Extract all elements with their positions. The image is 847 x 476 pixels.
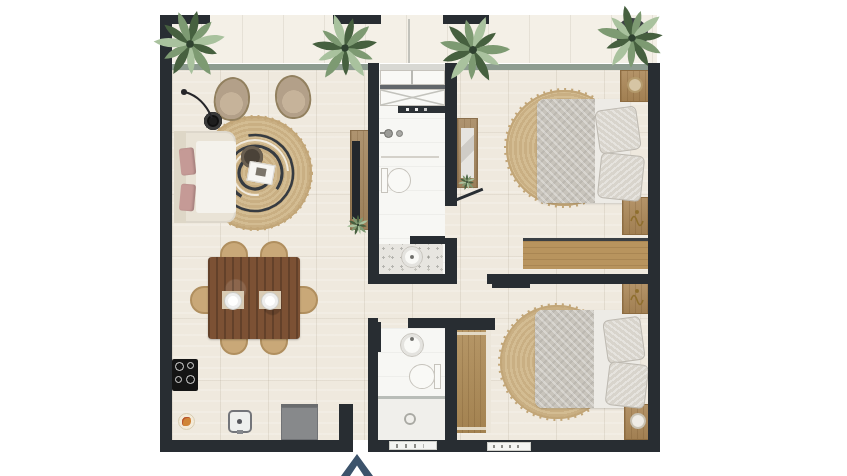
wall-right (648, 63, 660, 452)
plant-pot (616, 18, 648, 50)
plate (261, 292, 279, 310)
toilet-bowl (387, 168, 411, 193)
shower-tray (380, 89, 445, 106)
bathroom-top-wall-right (445, 63, 457, 206)
sofa-pillow (179, 183, 196, 211)
toiletry-item (415, 108, 418, 111)
shower-drain (404, 413, 416, 425)
plate (224, 292, 242, 310)
duvet (535, 310, 594, 408)
entrance-arrow-icon (341, 454, 373, 476)
closet-wardrobe (456, 330, 486, 433)
cooktop-burner (186, 375, 195, 384)
shower-glass (378, 396, 445, 399)
door-leaf-bathroom-bottom (377, 322, 381, 352)
sink-drain (410, 255, 414, 259)
bed-pillow (594, 105, 642, 154)
closet-shelf (456, 427, 486, 430)
toiletry-shelf (398, 106, 445, 113)
floor-plan-canvas (0, 0, 847, 476)
toiletry-item (424, 108, 427, 111)
cooktop-burner (175, 362, 184, 371)
cabinet-divider (411, 70, 413, 85)
food (182, 417, 191, 426)
bedroom-divider-wall (487, 274, 660, 284)
bathroom-top-wall-bottom (368, 274, 457, 284)
toiletry-item (406, 108, 409, 111)
bathroom-top-wall-left (368, 63, 379, 283)
balcony-divider (408, 19, 410, 63)
vanity-faucet (384, 129, 393, 138)
bed-pillow (602, 316, 646, 365)
nightstand-bowl (630, 413, 646, 429)
bed-pillow (597, 152, 646, 202)
vanity-faucet (396, 130, 403, 137)
sofa-pillow (179, 147, 197, 175)
vanity-edge (381, 156, 439, 158)
cooktop-burner (175, 376, 182, 383)
mirror-cabinet (380, 70, 445, 85)
vent-strip (487, 442, 531, 451)
tv-screen (352, 141, 360, 219)
balcony-rail-segment (443, 15, 489, 24)
sink-faucet (237, 430, 243, 434)
balcony-rail-segment (333, 15, 381, 24)
closet-shelf (456, 332, 486, 335)
sink-drain (237, 419, 242, 424)
wall-left (160, 63, 172, 452)
refrigerator (281, 404, 318, 440)
wall-bottom-left (160, 440, 353, 452)
floor-lamp-shade (204, 112, 222, 130)
closet-wall-top (451, 318, 495, 330)
door-leaf-bedroom-bottom (492, 284, 530, 288)
toilet-tank (434, 364, 441, 389)
dresser-mirror (461, 128, 474, 178)
duvet (537, 99, 595, 203)
balcony-rail-segment (160, 15, 172, 63)
sofa-seat-cushion (196, 141, 236, 213)
bed-pillow (604, 361, 649, 410)
window-bathroom (380, 64, 445, 70)
window-living (172, 64, 368, 70)
nightstand-lamp (627, 77, 643, 93)
shower-controls-shelf (389, 441, 437, 450)
sink-faucet (410, 337, 414, 341)
wardrobe (523, 238, 649, 269)
shower-frame (380, 85, 445, 89)
bathroom-bottom-wall-right (445, 318, 457, 440)
closet-edge (486, 330, 491, 433)
tray-book (255, 167, 266, 177)
toilet-bowl (409, 364, 435, 389)
window-bedroom (457, 64, 648, 70)
entry-wall-stub (339, 404, 353, 442)
sink-nook-wall (410, 236, 445, 244)
cooktop-burner (187, 362, 194, 369)
